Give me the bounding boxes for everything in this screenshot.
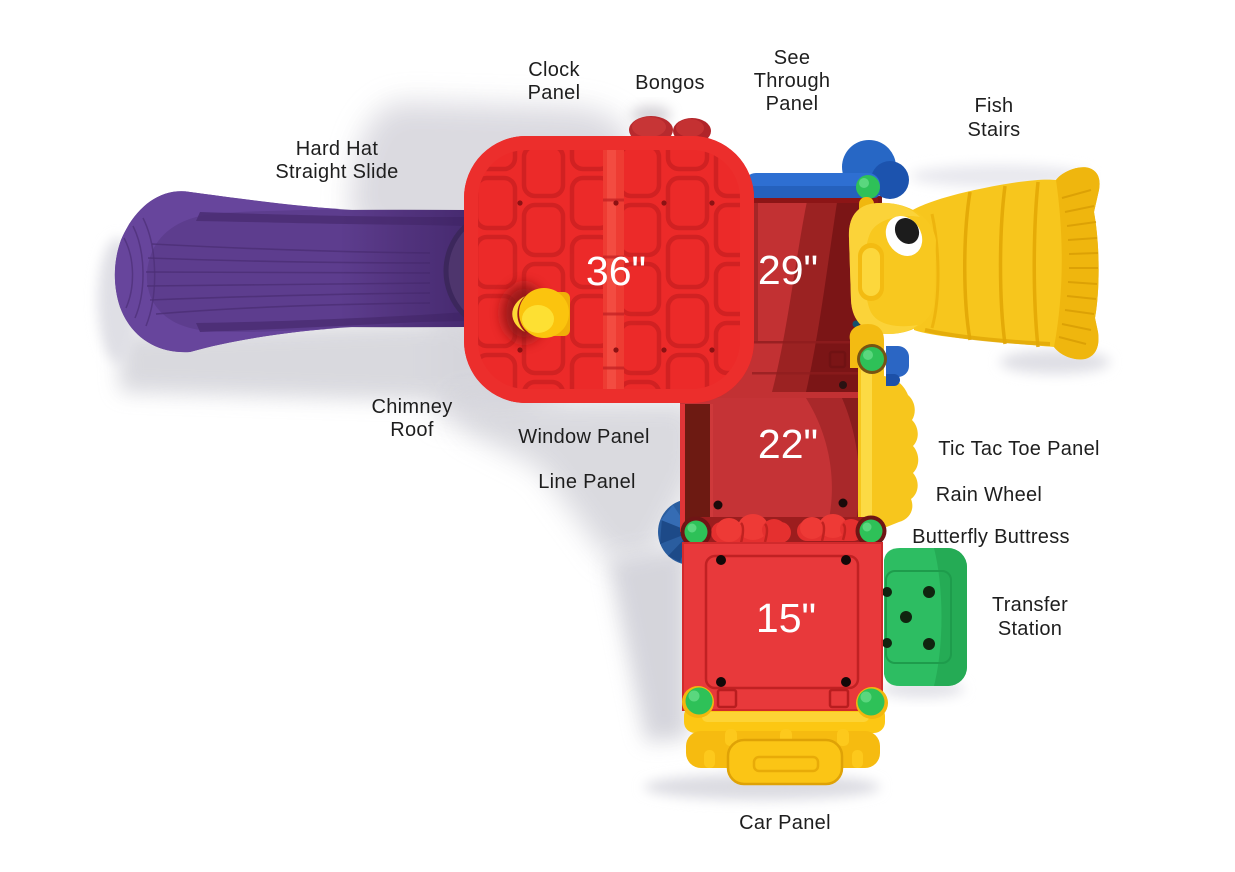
svg-text:Station: Station	[998, 618, 1062, 640]
svg-text:Tic Tac Toe Panel: Tic Tac Toe Panel	[938, 438, 1100, 460]
svg-text:Line Panel: Line Panel	[538, 471, 636, 493]
svg-text:Through: Through	[754, 70, 831, 92]
svg-text:Panel: Panel	[528, 82, 581, 104]
svg-text:Stairs: Stairs	[968, 119, 1021, 141]
svg-text:22": 22"	[758, 421, 818, 467]
svg-text:Roof: Roof	[390, 419, 434, 441]
svg-text:Straight Slide: Straight Slide	[275, 161, 398, 183]
svg-text:Butterfly Buttress: Butterfly Buttress	[912, 526, 1070, 548]
svg-text:Chimney: Chimney	[371, 396, 452, 418]
svg-text:Panel: Panel	[766, 93, 819, 115]
svg-text:Car Panel: Car Panel	[739, 812, 831, 834]
svg-text:29": 29"	[758, 247, 818, 293]
svg-text:15": 15"	[756, 595, 816, 641]
svg-text:Fish: Fish	[975, 95, 1014, 117]
svg-text:Transfer: Transfer	[992, 594, 1068, 616]
svg-text:Clock: Clock	[528, 59, 580, 81]
svg-text:Hard Hat: Hard Hat	[296, 138, 379, 160]
svg-text:See: See	[774, 47, 811, 69]
svg-text:Rain Wheel: Rain Wheel	[936, 484, 1042, 506]
svg-text:36": 36"	[586, 248, 646, 294]
svg-text:Bongos: Bongos	[635, 72, 705, 94]
svg-text:Window Panel: Window Panel	[518, 426, 649, 448]
